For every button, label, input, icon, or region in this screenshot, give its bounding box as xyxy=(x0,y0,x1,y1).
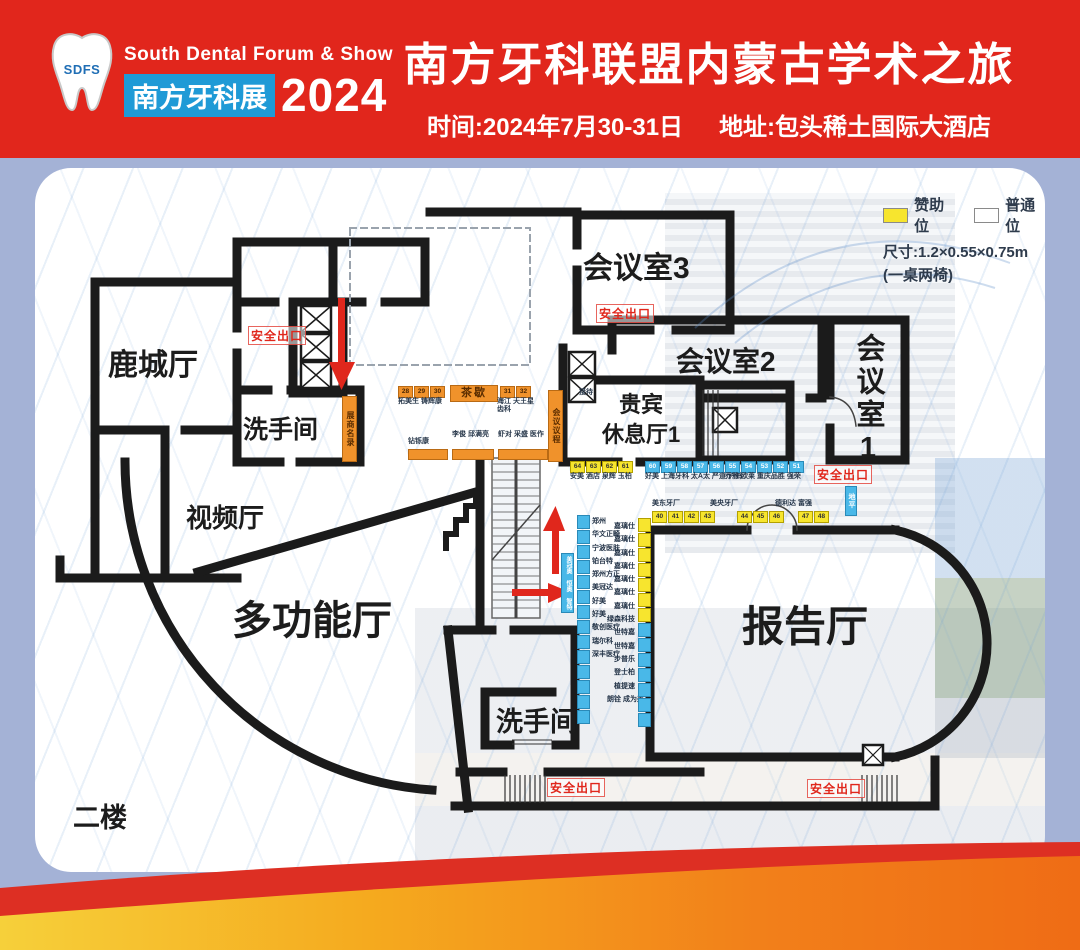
booth: 31 xyxy=(500,386,515,398)
booth-row-lecture-3: 47 48 xyxy=(798,511,829,523)
legend-sponsor-swatch xyxy=(883,208,908,223)
booth: 64 xyxy=(570,461,585,473)
legend: 赞助位 普通位 尺寸:1.2×0.55×0.75m (一桌两椅) xyxy=(883,194,1045,285)
booth: 29 xyxy=(414,386,429,398)
logo-year: 2024 xyxy=(281,72,387,118)
exhibitor-directory-strip: 展商名录 xyxy=(342,396,357,462)
booth-label-lecture-mid: 美央牙厂 xyxy=(710,500,738,508)
tooth-logo-icon: SDFS xyxy=(50,32,114,112)
legend-size: 尺寸:1.2×0.55×0.75m xyxy=(883,241,1045,262)
booth-strip-mid xyxy=(638,518,651,727)
room-label-meeting1: 会议室1 xyxy=(847,333,889,468)
booth-strip-diping: 地平 xyxy=(845,486,857,516)
room-label-meeting2: 会议室2 xyxy=(676,340,776,380)
logo-acronym: SDFS xyxy=(50,62,114,77)
booth-label-mid-2: 李俊 邱满亮 xyxy=(452,431,492,439)
agenda-strip: 会议议程 xyxy=(548,390,563,462)
booth: 41 xyxy=(668,511,683,523)
safety-exit-sign-5: 安全出口 xyxy=(807,779,865,798)
booth-row-top-orange-2: 31 32 xyxy=(500,386,531,398)
booth: 47 xyxy=(798,511,813,523)
room-label-meeting3: 会议室3 xyxy=(583,243,690,287)
booth: 28 xyxy=(398,386,413,398)
booth: 45 xyxy=(753,511,768,523)
event-title: 南方牙科联盟内蒙古学术之旅 xyxy=(375,28,1043,93)
booth: 53 xyxy=(757,461,772,473)
booth-names-mid: 嘉璃仕 嘉璃仕 嘉璃仕 嘉璃仕 嘉璃仕 嘉璃仕 嘉璃仕 绿森科技 世特嘉 世特嘉… xyxy=(607,520,635,706)
logo-english-name: South Dental Forum & Show xyxy=(124,44,393,66)
booth: 42 xyxy=(684,511,699,523)
booth-label-lecture-left: 美东牙厂 xyxy=(652,500,680,508)
event-logo: SDFS South Dental Forum & Show 南方牙科展 202… xyxy=(50,32,393,118)
booth-label-mid-3: 虾对 采盛 医作 xyxy=(498,431,546,439)
legend-sponsor-label: 赞助位 xyxy=(914,194,954,236)
booth: 44 xyxy=(737,511,752,523)
booth: 59 xyxy=(661,461,676,473)
booth-bar-mid-3 xyxy=(498,449,548,460)
legend-note: (一桌两椅) xyxy=(883,264,1045,285)
booth-label-vip-yellow: 安美 酒店 泉辉 玉柏 xyxy=(570,473,632,481)
booth-label-vip-blue2: 乔雅 欧莱 重庆品胜 强荣 xyxy=(725,473,801,481)
room-label-video: 视频厅 xyxy=(186,498,264,535)
booth-bar-mid-2 xyxy=(452,449,494,460)
booth: 61 xyxy=(618,461,633,473)
booth: 52 xyxy=(773,461,788,473)
room-label-lucheng: 鹿城厅 xyxy=(108,340,198,384)
legend-regular-swatch xyxy=(974,208,999,223)
booth-label-mid-1: 钻铄康 xyxy=(408,438,429,446)
event-address: 地址:包头稀土国际大酒店 xyxy=(719,114,991,141)
floor-plan-card: 赞助位 普通位 尺寸:1.2×0.55×0.75m (一桌两椅) 鹿城厅 洗手间… xyxy=(35,168,1045,872)
booth-strip-escalator-side: 美冠奥 恒奥 智特 xyxy=(561,553,574,613)
bottom-wave-decoration xyxy=(0,830,1080,950)
safety-exit-sign-2: 安全出口 xyxy=(596,304,654,323)
safety-exit-sign-4: 安全出口 xyxy=(547,778,605,797)
legend-regular-label: 普通位 xyxy=(1005,194,1045,236)
reception-label: 接待 xyxy=(579,389,593,397)
booth-row-top-orange: 28 29 30 xyxy=(398,386,445,398)
safety-exit-sign-3: 安全出口 xyxy=(814,465,872,484)
booth-row-vip-blue2: 55 54 53 52 51 xyxy=(725,461,804,473)
booth: 57 xyxy=(693,461,708,473)
booth: 48 xyxy=(814,511,829,523)
booth: 43 xyxy=(700,511,715,523)
room-label-lecture: 报告厅 xyxy=(742,593,868,654)
booth: 51 xyxy=(789,461,804,473)
event-time: 时间:2024年7月30-31日 xyxy=(427,114,683,141)
booth-label-top-1: 拓美生 铸辉康 xyxy=(398,398,442,406)
booth-bar-mid-1 xyxy=(408,449,448,460)
header-banner: SDFS South Dental Forum & Show 南方牙科展 202… xyxy=(0,0,1080,158)
booth: 60 xyxy=(645,461,660,473)
tea-break-bar: 茶歇 xyxy=(450,385,498,402)
booth-label-lecture-right: 德利达 富强 xyxy=(775,500,812,508)
event-subtitle: 时间:2024年7月30-31日地址:包头稀土国际大酒店 xyxy=(375,107,1043,142)
booth: 54 xyxy=(741,461,756,473)
booth: 32 xyxy=(516,386,531,398)
booth-row-lecture-1: 40 41 42 43 xyxy=(652,511,715,523)
booth-row-vip-blue1: 60 59 58 57 56 xyxy=(645,461,724,473)
booth: 63 xyxy=(586,461,601,473)
booth: 58 xyxy=(677,461,692,473)
room-label-restroom-upper: 洗手间 xyxy=(243,410,318,446)
booth: 55 xyxy=(725,461,740,473)
booth-row-vip-yellow: 64 63 62 61 xyxy=(570,461,633,473)
booth: 46 xyxy=(769,511,784,523)
room-label-restroom-lower: 洗手间 xyxy=(496,700,577,739)
safety-exit-sign-1: 安全出口 xyxy=(248,326,306,345)
room-label-vip-line2: 休息厅1 xyxy=(602,420,680,450)
booth: 30 xyxy=(430,386,445,398)
booth-label-top-2: 海江 天王星 齿科 xyxy=(497,398,539,414)
booth: 56 xyxy=(709,461,724,473)
booth-row-lecture-2: 44 45 46 xyxy=(737,511,784,523)
booth-strip-left xyxy=(577,515,590,724)
booth: 62 xyxy=(602,461,617,473)
logo-chinese-badge: 南方牙科展 xyxy=(124,74,275,117)
booth: 40 xyxy=(652,511,667,523)
room-label-multifunction: 多功能厅 xyxy=(232,588,392,646)
room-label-vip-line1: 贵宾 xyxy=(602,390,680,420)
